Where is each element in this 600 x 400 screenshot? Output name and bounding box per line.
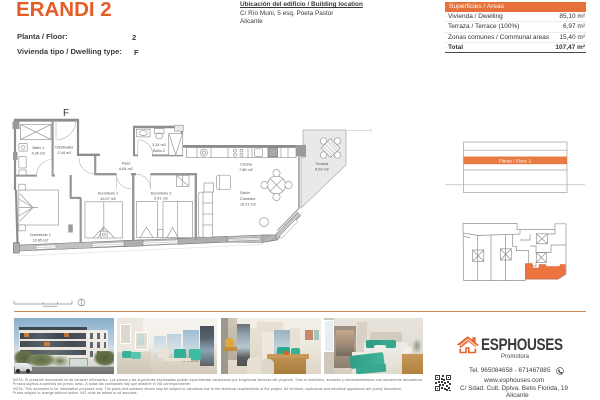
svg-text:Salón: Salón [240,191,250,195]
svg-text:4.26 m2: 4.26 m2 [32,152,46,156]
svg-text:Cocina: Cocina [240,163,253,167]
svg-text:10.07 m2: 10.07 m2 [100,197,116,201]
svg-text:Dormitorio 2: Dormitorio 2 [98,192,119,196]
svg-text:Comedor: Comedor [240,197,256,201]
svg-text:Terraza: Terraza [316,162,330,166]
svg-text:Paso: Paso [122,162,131,166]
svg-text:Dormitorio 1: Dormitorio 1 [30,233,51,237]
svg-text:6.84 m2: 6.84 m2 [119,167,133,171]
svg-text:6.03 m2: 6.03 m2 [315,168,329,172]
svg-text:10.95 m2: 10.95 m2 [33,239,49,243]
svg-text:7.86 m2: 7.86 m2 [239,168,253,172]
svg-text:Baño 2: Baño 2 [153,149,165,153]
svg-text:Distribuidor: Distribuidor [55,146,74,150]
svg-text:16.21 m2: 16.21 m2 [240,203,256,207]
svg-text:Baño 1: Baño 1 [32,146,44,150]
svg-text:3.34 m2: 3.34 m2 [152,143,166,147]
svg-text:2.44 m2: 2.44 m2 [58,151,72,155]
svg-text:F: F [63,108,69,119]
svg-text:Planta / Floor: 2: Planta / Floor: 2 [499,159,532,164]
svg-text:Dormitorio 3: Dormitorio 3 [151,192,172,196]
svg-text:9.91 m2: 9.91 m2 [154,197,168,201]
